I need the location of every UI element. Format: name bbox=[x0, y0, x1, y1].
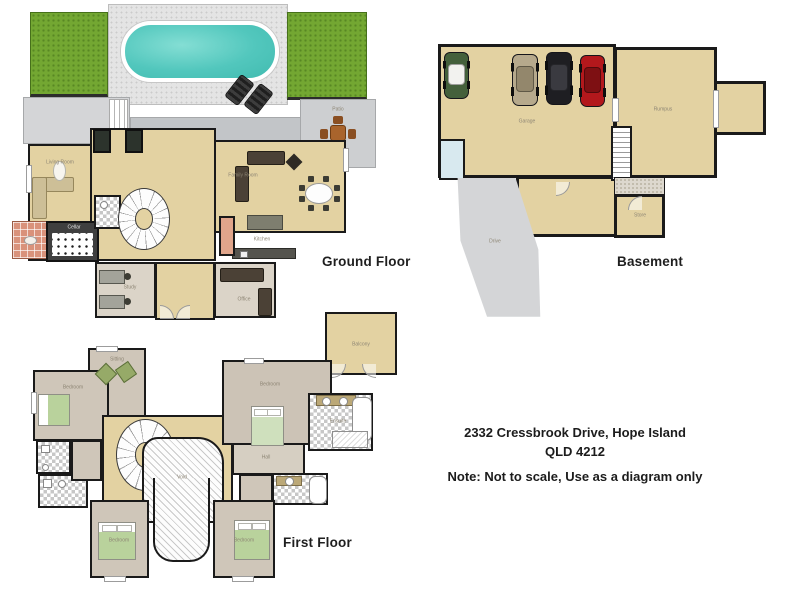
room-label: Patio bbox=[332, 108, 343, 113]
kitchen-island bbox=[247, 215, 283, 230]
room-label: Ensuite bbox=[330, 420, 347, 425]
room-label: Sitting bbox=[110, 358, 124, 363]
void-over-entry bbox=[153, 478, 210, 562]
first-floor-label: First Floor bbox=[283, 535, 352, 550]
room-label: Kitchen bbox=[254, 238, 271, 243]
pantry bbox=[219, 216, 235, 256]
glass-door-panel bbox=[93, 129, 111, 153]
shower-icon bbox=[332, 431, 368, 448]
room-bathroom-1 bbox=[36, 440, 71, 474]
room-label: Rumpus bbox=[654, 108, 673, 113]
room-label: Drive bbox=[489, 240, 501, 245]
car-icon-suv-black bbox=[546, 52, 572, 105]
spiral-staircase-ground bbox=[118, 188, 170, 250]
room-robe-1 bbox=[71, 440, 102, 481]
car-icon-sports-red bbox=[580, 55, 605, 107]
room-cold-store bbox=[439, 139, 465, 180]
room-label: Bedroom bbox=[63, 386, 83, 391]
lawn-left bbox=[30, 12, 108, 97]
room-label: Cellar bbox=[67, 226, 80, 231]
room-label: Living Room bbox=[46, 161, 74, 166]
room-label: Bedroom bbox=[260, 383, 280, 388]
room-label: Study bbox=[124, 286, 137, 291]
floor-plan-sheet: Patio Cellar bbox=[0, 0, 800, 600]
desk-icon bbox=[99, 295, 125, 309]
room-label: Void bbox=[177, 476, 187, 481]
room-label: Bedroom bbox=[234, 539, 254, 544]
room-wine-cellar: Cellar bbox=[46, 221, 99, 262]
glass-door-panel bbox=[125, 129, 143, 153]
room-label: Store bbox=[634, 214, 646, 219]
bed-icon bbox=[251, 406, 284, 446]
dining-table-icon bbox=[305, 183, 333, 204]
ground-floor-label: Ground Floor bbox=[322, 254, 411, 269]
swimming-pool bbox=[121, 21, 279, 82]
address-line-2: QLD 4212 bbox=[440, 442, 710, 461]
vanity-icon bbox=[316, 395, 356, 406]
sofa-icon bbox=[235, 166, 249, 202]
door-arc bbox=[332, 364, 346, 378]
desk-icon bbox=[99, 270, 125, 284]
room-label: Family Room bbox=[228, 174, 257, 179]
address-line-1: 2332 Cressbrook Drive, Hope Island bbox=[440, 423, 710, 442]
basement-foyer bbox=[614, 177, 665, 195]
door-arc bbox=[362, 364, 376, 378]
bathtub-icon bbox=[309, 476, 327, 504]
car-icon-suv-tan bbox=[512, 54, 538, 106]
desk-icon bbox=[220, 268, 264, 282]
room-label: Balcony bbox=[352, 343, 370, 348]
address-block: 2332 Cressbrook Drive, Hope Island QLD 4… bbox=[440, 423, 710, 486]
room-label: Office bbox=[238, 298, 251, 303]
room-label: Bedroom bbox=[109, 539, 129, 544]
basement-stairs bbox=[611, 126, 632, 181]
scale-note: Note: Not to scale, Use as a diagram onl… bbox=[440, 467, 710, 486]
room-bump-out bbox=[714, 81, 766, 135]
porch bbox=[12, 221, 47, 259]
room-bathroom-ground bbox=[94, 195, 121, 229]
vanity-icon bbox=[276, 476, 302, 486]
car-icon-convertible bbox=[444, 52, 469, 99]
sofa-icon bbox=[247, 151, 285, 165]
lawn-right bbox=[287, 12, 367, 100]
sofa-icon bbox=[258, 288, 272, 316]
room-label: Hall bbox=[262, 456, 271, 461]
sofa-icon bbox=[32, 177, 47, 219]
kitchen-counter bbox=[232, 248, 296, 259]
bed-icon bbox=[38, 394, 70, 426]
room-label: Garage bbox=[519, 120, 536, 125]
basement-label: Basement bbox=[617, 254, 683, 269]
